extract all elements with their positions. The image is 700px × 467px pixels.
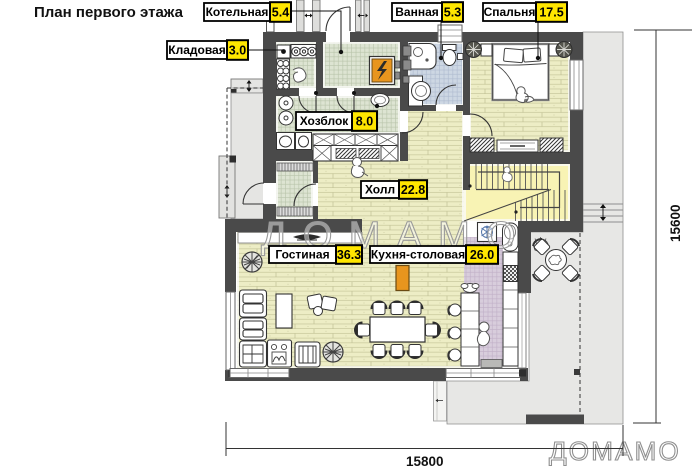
svg-text:15800: 15800 <box>406 454 444 467</box>
svg-text:Кухня-столовая: Кухня-столовая <box>371 248 465 262</box>
svg-text:Кладовая: Кладовая <box>168 43 225 57</box>
svg-text:5.4: 5.4 <box>272 6 289 20</box>
svg-text:26.0: 26.0 <box>470 248 494 262</box>
svg-text:36.3: 36.3 <box>337 248 361 262</box>
svg-text:План первого этажа: План первого этажа <box>34 4 184 21</box>
svg-text:3.0: 3.0 <box>229 44 246 58</box>
svg-text:8.0: 8.0 <box>356 115 373 129</box>
svg-text:15600: 15600 <box>668 204 683 242</box>
svg-text:Гостиная: Гостиная <box>275 248 329 262</box>
svg-text:Котельная: Котельная <box>206 5 269 19</box>
svg-text:22.8: 22.8 <box>401 183 425 197</box>
svg-text:Ванная: Ванная <box>395 5 439 19</box>
svg-text:Хозблок: Хозблок <box>300 114 350 128</box>
svg-text:5.3: 5.3 <box>444 6 461 20</box>
svg-text:Спальня: Спальня <box>484 5 536 19</box>
svg-text:17.5: 17.5 <box>539 6 563 20</box>
svg-text:Холл: Холл <box>365 183 395 197</box>
